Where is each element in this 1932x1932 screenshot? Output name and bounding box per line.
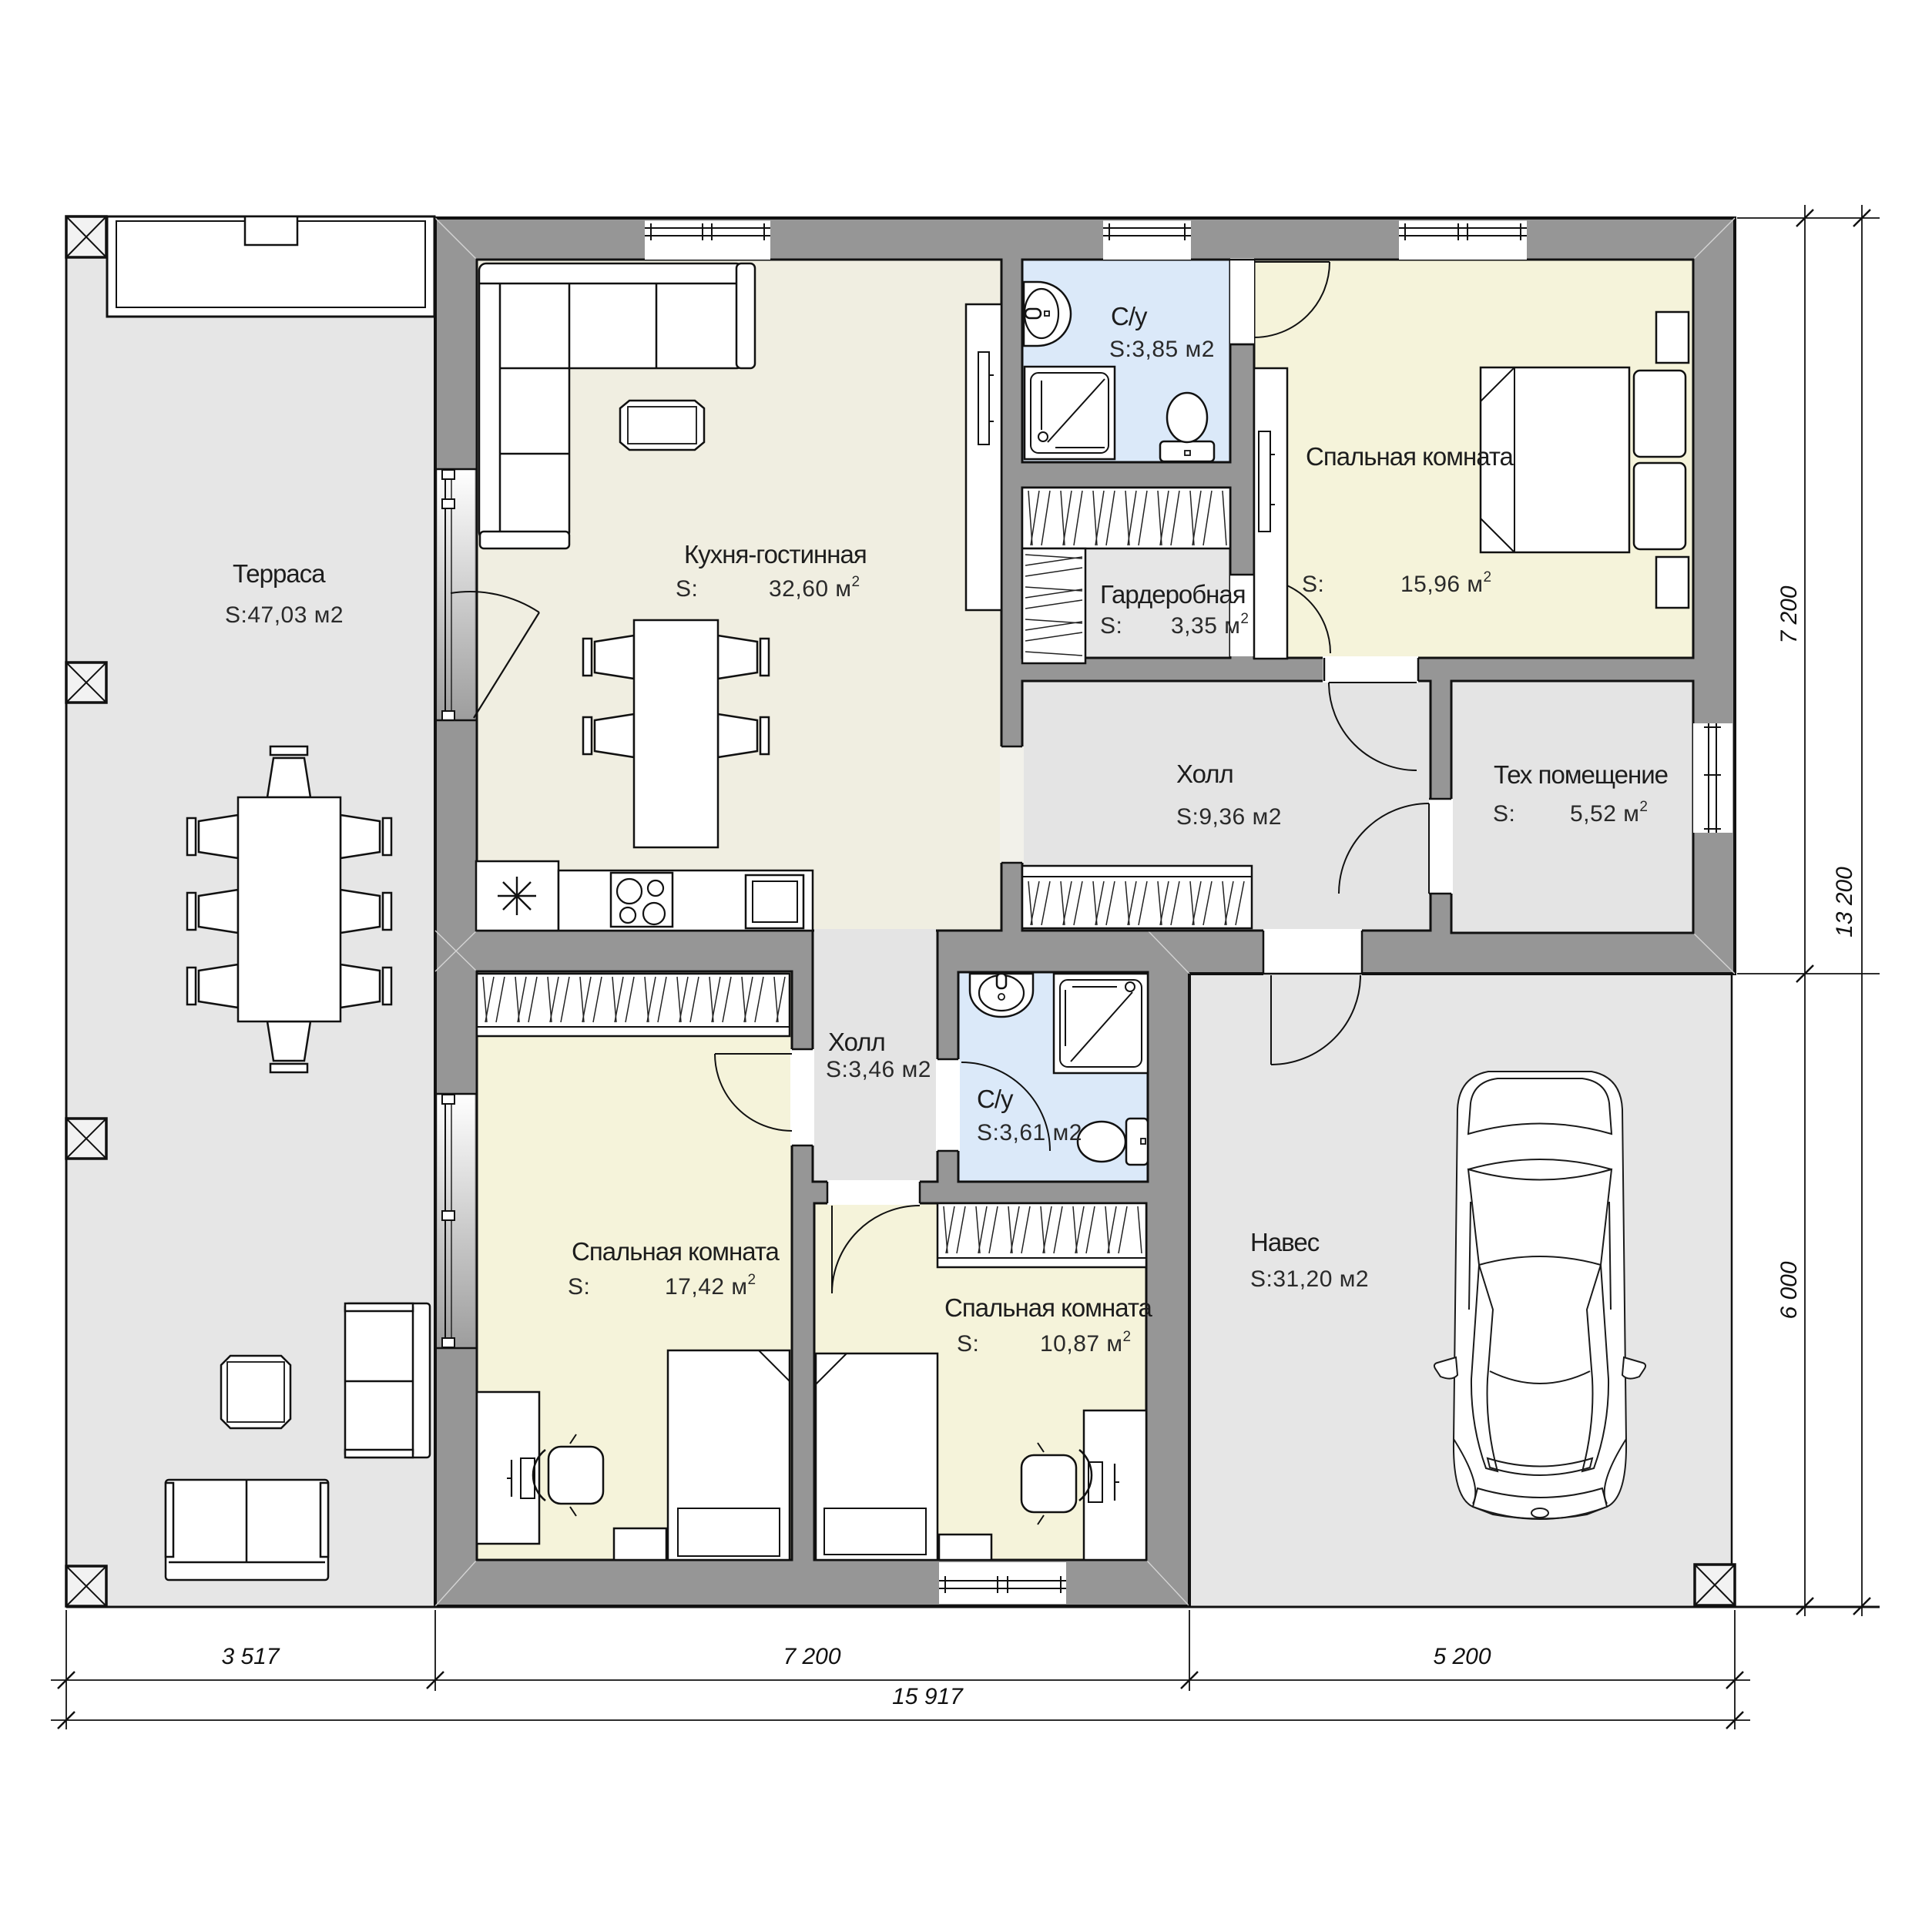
svg-text:17,42 м2: 17,42 м2 [665,1272,756,1300]
svg-text:Холл: Холл [1176,760,1233,788]
svg-text:5 200: 5 200 [1433,1644,1491,1669]
svg-text:7 200: 7 200 [1776,585,1802,643]
svg-text:3 517: 3 517 [221,1644,280,1669]
svg-text:Гардеробная: Гардеробная [1100,580,1246,609]
svg-text:Кухня-гостинная: Кухня-гостинная [684,540,867,569]
svg-text:5,52 м2: 5,52 м2 [1570,799,1648,827]
svg-text:32,60 м2: 32,60 м2 [769,574,860,602]
svg-text:S:9,36 м2: S:9,36 м2 [1176,804,1282,830]
svg-text:7 200: 7 200 [783,1644,840,1669]
svg-text:С/у: С/у [977,1085,1014,1113]
svg-text:S:: S: [1493,801,1515,827]
svg-text:Терраса: Терраса [233,559,326,588]
svg-text:S:: S: [1302,572,1324,597]
svg-text:S:47,03 м2: S:47,03 м2 [225,602,344,628]
svg-text:С/у: С/у [1111,302,1148,330]
svg-text:Спальная комната: Спальная комната [572,1237,780,1266]
svg-text:S:: S: [957,1331,979,1357]
svg-text:Спальная комната: Спальная комната [944,1293,1153,1322]
svg-text:Тех помещение: Тех помещение [1494,760,1668,789]
svg-text:15,96 м2: 15,96 м2 [1400,569,1492,597]
svg-text:S:: S: [676,576,698,602]
svg-text:S:: S: [1100,613,1122,639]
svg-text:S:3,61 м2: S:3,61 м2 [977,1120,1082,1145]
svg-text:Спальная комната: Спальная комната [1306,442,1514,471]
svg-text:S:31,20 м2: S:31,20 м2 [1250,1266,1369,1292]
svg-text:15 917: 15 917 [892,1684,964,1709]
svg-text:S:3,85 м2: S:3,85 м2 [1109,337,1215,362]
svg-text:13 200: 13 200 [1832,867,1857,937]
svg-text:Навес: Навес [1250,1228,1320,1256]
svg-text:S:: S: [568,1274,590,1300]
svg-text:Холл: Холл [828,1028,885,1056]
svg-text:S:3,46 м2: S:3,46 м2 [826,1057,931,1082]
svg-text:10,87 м2: 10,87 м2 [1040,1329,1132,1357]
svg-text:3,35 м2: 3,35 м2 [1171,611,1249,639]
svg-text:6 000: 6 000 [1776,1261,1802,1319]
